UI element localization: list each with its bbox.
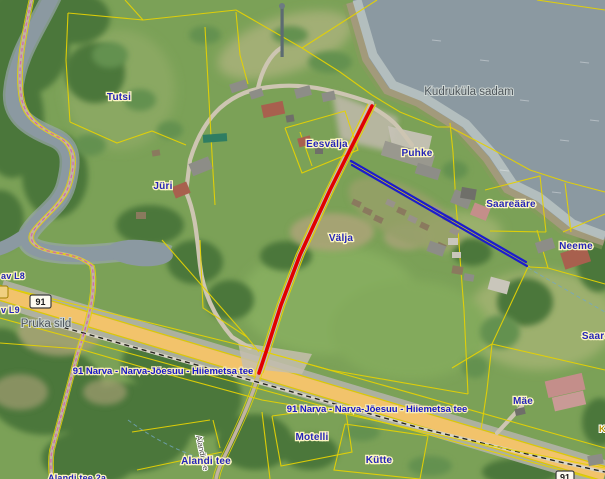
place-label-neeme: Neeme — [559, 241, 593, 252]
place-label-saareaare: Saareääre — [486, 199, 536, 210]
place-label-juri: Jüri — [153, 181, 172, 192]
road-shield-91-text: 91 — [35, 297, 45, 307]
place-label-kutte: Kütte — [366, 455, 393, 466]
place-label-eesvalja: Eesvälja — [306, 139, 348, 150]
place-label-v-l9: v L9 — [1, 305, 20, 315]
place-label-motelli: Motelli — [295, 432, 328, 443]
place-label-alandi-tee-2a: Alandi tee 2a — [48, 473, 107, 479]
place-label-puhke: Puhke — [401, 148, 432, 159]
road-shield-91-br-text: 91 — [560, 473, 570, 479]
road-91-label-west: 91 Narva - Narva-Jõesuu - Hiiemetsa tee — [73, 366, 254, 377]
place-label-k-partial: K — [599, 424, 605, 434]
place-label-alandi-tee: Alandi tee — [181, 456, 231, 467]
aerial-map-canvas[interactable]: 91 91 Kudruküla sadam Pruka sild 91 Narv… — [0, 0, 605, 479]
road-shield-91-bottom-right: 91 — [556, 471, 574, 479]
road-91-label-east: 91 Narva - Narva-Jõesuu - Hiiemetsa tee — [287, 404, 468, 415]
place-label-valja: Välja — [329, 233, 354, 244]
bridge-label: Pruka sild — [21, 318, 72, 330]
place-label-av-l8: av L8 — [1, 271, 25, 281]
road-shield-91: 91 — [30, 295, 51, 308]
place-label-tutsi: Tutsi — [107, 92, 131, 103]
place-label-saare: Saare — [582, 331, 605, 342]
road-shield-partial — [0, 286, 8, 298]
place-label-mae: Mäe — [513, 396, 533, 407]
harbor-label: Kudruküla sadam — [424, 86, 514, 98]
